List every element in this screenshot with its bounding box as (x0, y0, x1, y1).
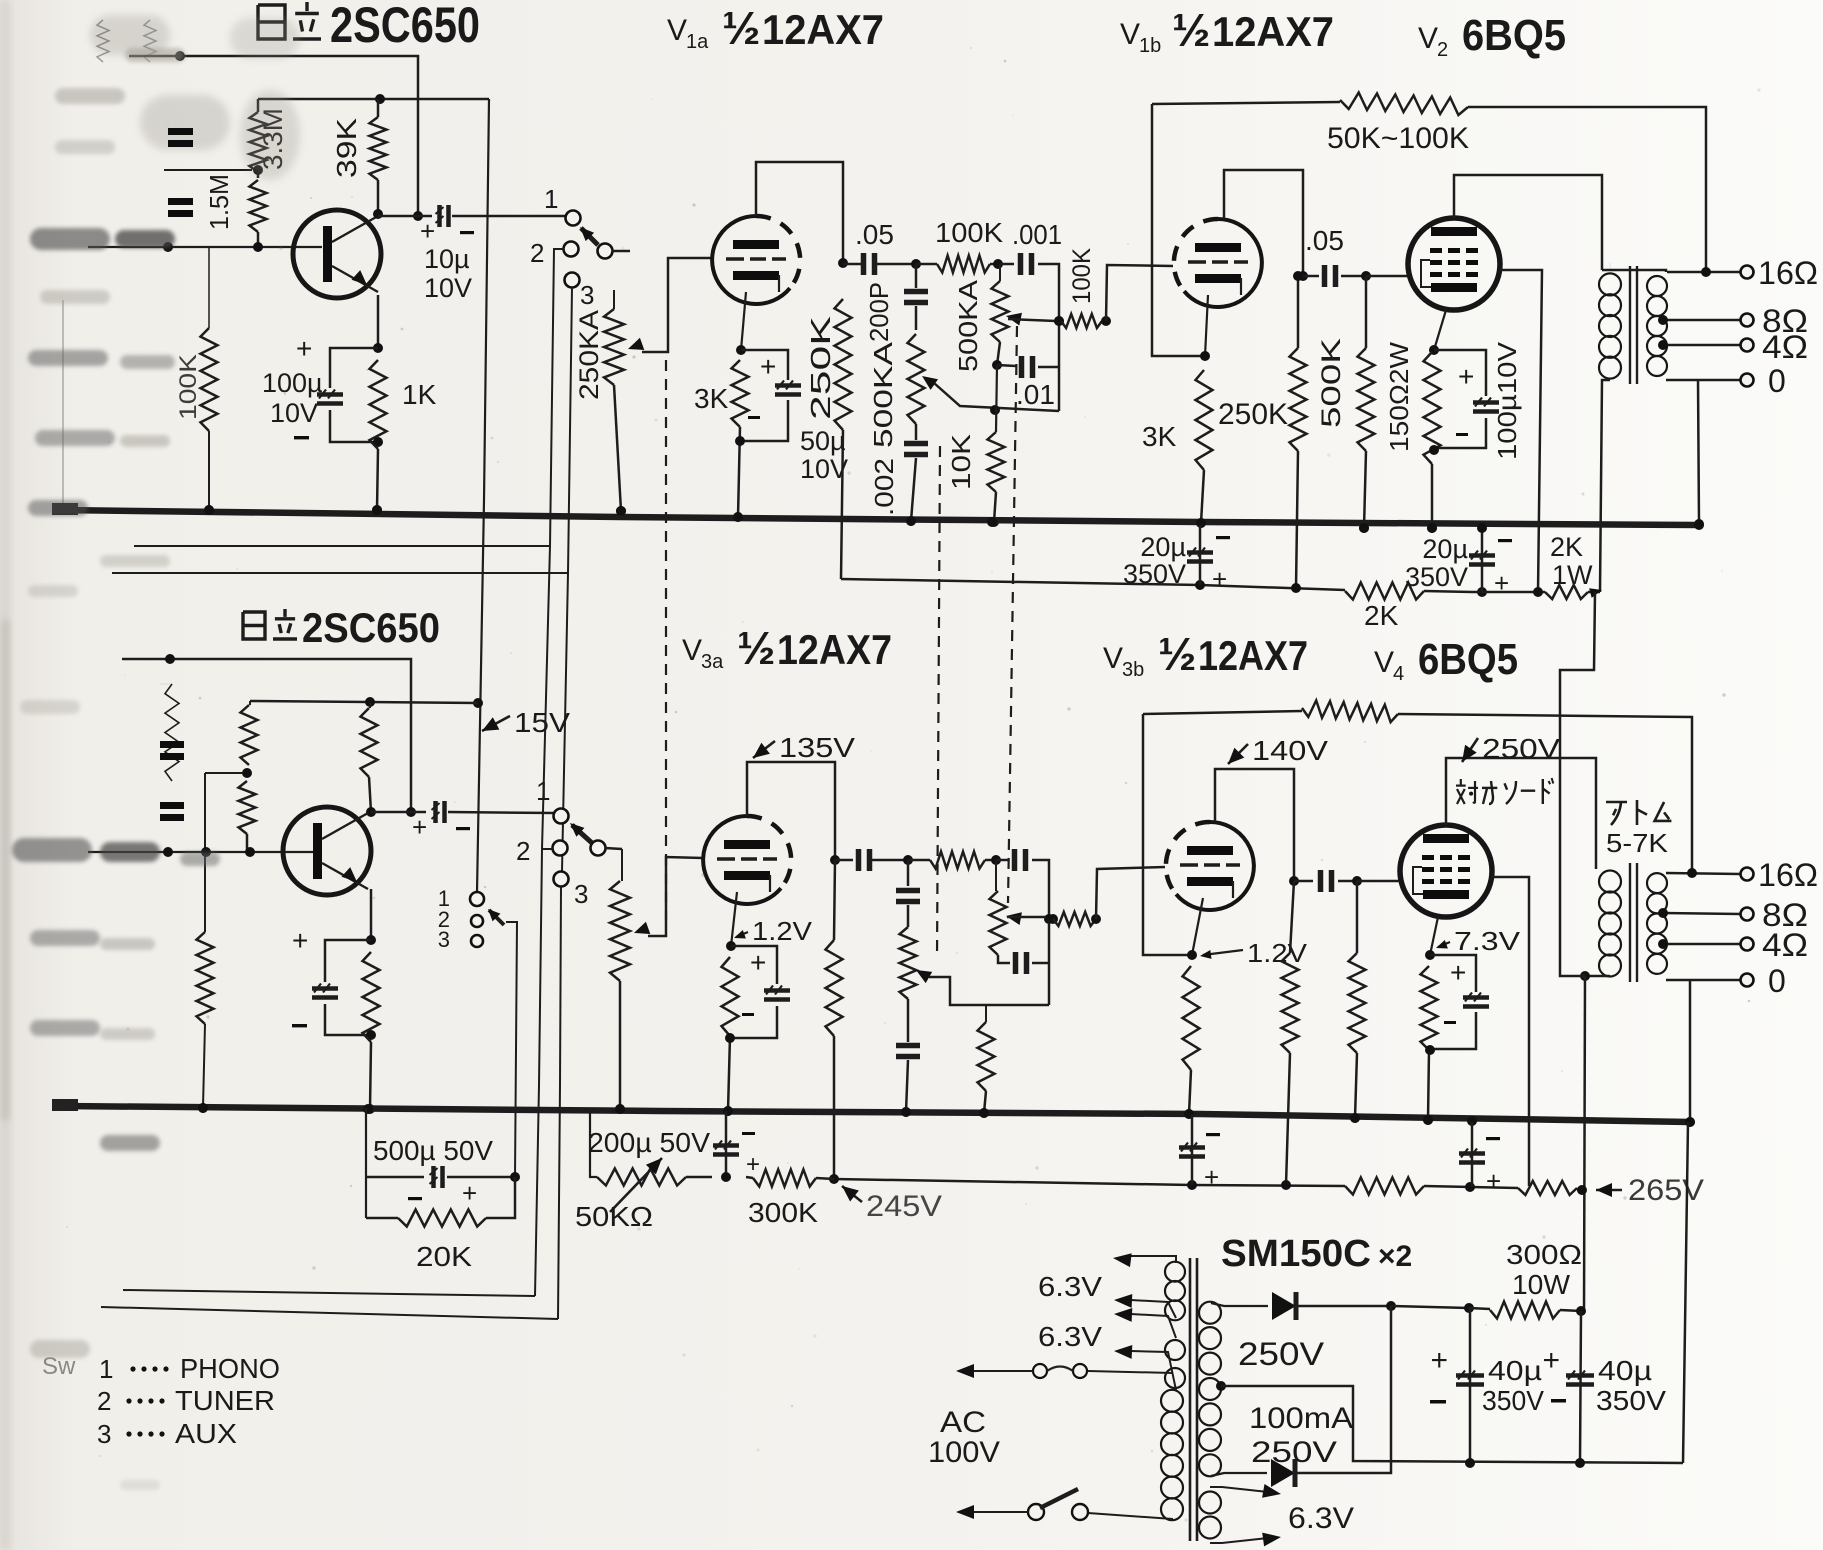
svg-text:10W: 10W (1512, 1269, 1571, 1300)
svg-text:1: 1 (536, 776, 550, 806)
svg-text:4: 4 (1393, 663, 1404, 685)
svg-text:3K: 3K (1142, 421, 1177, 452)
svg-text:12AX7: 12AX7 (1212, 8, 1334, 55)
svg-text:+: + (1212, 564, 1227, 594)
svg-text:20µ: 20µ (1422, 534, 1468, 564)
svg-text:.002: .002 (869, 458, 899, 516)
svg-text:+: + (746, 1151, 760, 1178)
svg-text:3: 3 (574, 879, 588, 909)
svg-text:½: ½ (1172, 4, 1210, 56)
svg-text:10µ: 10µ (424, 244, 470, 274)
svg-text:5-7K: 5-7K (1606, 828, 1669, 858)
svg-text:135V: 135V (779, 732, 855, 763)
svg-text:250K: 250K (1218, 398, 1288, 431)
svg-text:350V: 350V (1405, 562, 1468, 592)
svg-text:×2: ×2 (1378, 1240, 1412, 1273)
svg-text:250K: 250K (805, 316, 836, 420)
svg-text:SM150C: SM150C (1221, 1233, 1371, 1275)
svg-text:250V: 250V (1482, 733, 1560, 764)
svg-text:350V: 350V (1596, 1385, 1666, 1416)
svg-text:12AX7: 12AX7 (1198, 632, 1308, 679)
svg-text:39K: 39K (331, 118, 362, 178)
svg-text:2: 2 (530, 238, 544, 268)
svg-text:50µ: 50µ (800, 426, 846, 456)
svg-text:½: ½ (1158, 628, 1196, 680)
svg-text:V: V (1374, 646, 1394, 679)
svg-text:250KA: 250KA (574, 310, 604, 400)
svg-text:+: + (1430, 1344, 1448, 1377)
svg-text:+: + (296, 333, 312, 364)
svg-text:100µ10V: 100µ10V (1492, 341, 1522, 460)
svg-text:2K: 2K (1364, 600, 1399, 631)
svg-text:16Ω: 16Ω (1758, 255, 1818, 291)
svg-text:100K: 100K (175, 354, 202, 420)
svg-text:10V: 10V (800, 454, 848, 484)
svg-text:1.5M: 1.5M (204, 174, 234, 230)
svg-text:100K: 100K (1068, 248, 1096, 304)
svg-text:V: V (1418, 22, 1438, 55)
svg-text:+: + (760, 351, 776, 382)
svg-text:TUNER: TUNER (175, 1385, 275, 1416)
svg-text:350V: 350V (1123, 559, 1186, 589)
svg-text:6.3V: 6.3V (1038, 1271, 1102, 1302)
svg-text:2K: 2K (1550, 532, 1583, 562)
svg-text:15V: 15V (514, 707, 570, 738)
svg-text:6.3V: 6.3V (1038, 1321, 1102, 1352)
svg-text:3: 3 (438, 927, 450, 952)
svg-text:350V: 350V (1482, 1385, 1544, 1416)
svg-text:1.2V: 1.2V (1247, 938, 1308, 968)
svg-text:2SC650: 2SC650 (330, 0, 480, 53)
svg-text:1a: 1a (686, 31, 709, 53)
svg-text:3K: 3K (694, 383, 729, 414)
svg-text:40µ: 40µ (1488, 1355, 1542, 1386)
svg-text:V: V (1103, 642, 1123, 675)
svg-text:0: 0 (1768, 963, 1786, 999)
svg-text:250V: 250V (1251, 1436, 1337, 1469)
svg-text:.05: .05 (855, 219, 894, 250)
svg-text:+: + (462, 1178, 477, 1208)
svg-text:+: + (750, 947, 766, 978)
svg-text:½: ½ (722, 2, 760, 54)
svg-text:500K: 500K (1316, 338, 1346, 428)
svg-text:6BQ5: 6BQ5 (1418, 635, 1518, 684)
svg-text:7.3V: 7.3V (1454, 926, 1521, 956)
svg-text:20µ: 20µ (1140, 532, 1186, 562)
svg-text:0: 0 (1768, 363, 1786, 399)
svg-text:2: 2 (1437, 39, 1448, 61)
svg-text:+: + (412, 812, 427, 842)
svg-text:1K: 1K (402, 379, 437, 410)
svg-text:300Ω: 300Ω (1506, 1239, 1582, 1270)
svg-text:V: V (682, 634, 702, 667)
svg-text:50K~100K: 50K~100K (1327, 122, 1469, 155)
svg-text:50KΩ: 50KΩ (575, 1201, 653, 1232)
svg-text:½: ½ (737, 622, 775, 674)
svg-text:100mA: 100mA (1249, 1402, 1353, 1435)
svg-text:10V: 10V (270, 398, 318, 428)
svg-text:100V: 100V (928, 1436, 1000, 1469)
svg-text:2SC650: 2SC650 (302, 604, 440, 651)
svg-text:+: + (1204, 1162, 1219, 1192)
svg-text:V: V (1120, 18, 1140, 51)
svg-text:300K: 300K (748, 1197, 818, 1228)
svg-text:12AX7: 12AX7 (762, 6, 884, 53)
svg-text:+: + (1542, 1344, 1560, 1377)
svg-text:4Ω: 4Ω (1762, 329, 1808, 365)
svg-text:100K: 100K (935, 217, 1003, 248)
svg-text:150Ω2W: 150Ω2W (1384, 342, 1414, 452)
svg-text:2: 2 (516, 836, 530, 866)
svg-text:265V: 265V (1628, 1174, 1704, 1207)
svg-text:12AX7: 12AX7 (777, 626, 892, 673)
svg-text:3a: 3a (701, 651, 724, 673)
svg-text:40µ: 40µ (1598, 1355, 1652, 1386)
svg-text:200µ 50V: 200µ 50V (588, 1127, 710, 1158)
svg-text:10K: 10K (946, 433, 976, 490)
svg-text:1W: 1W (1552, 560, 1593, 590)
svg-text:500KA: 500KA (953, 279, 983, 372)
svg-text:.001: .001 (1012, 219, 1062, 250)
svg-text:1.2V: 1.2V (752, 916, 813, 946)
svg-text:6BQ5: 6BQ5 (1462, 11, 1566, 60)
svg-text:V: V (667, 14, 687, 47)
svg-text:+: + (1458, 361, 1474, 392)
svg-text:.05: .05 (1305, 225, 1344, 256)
svg-text:140V: 140V (1252, 735, 1328, 766)
svg-text:AUX: AUX (175, 1418, 237, 1449)
svg-text:1: 1 (99, 1354, 113, 1384)
svg-text:1: 1 (544, 184, 558, 214)
svg-text:3b: 3b (1122, 659, 1144, 681)
svg-text:6.3V: 6.3V (1288, 1502, 1354, 1535)
svg-text:+: + (1450, 957, 1466, 988)
svg-text:200P: 200P (864, 282, 894, 342)
svg-text:100µ: 100µ (262, 368, 323, 398)
svg-text:20K: 20K (416, 1241, 472, 1272)
svg-text:3: 3 (580, 280, 594, 310)
svg-text:2: 2 (97, 1386, 111, 1416)
svg-text:+: + (420, 216, 435, 246)
svg-text:.01: .01 (1016, 379, 1055, 410)
svg-text:AC: AC (940, 1406, 986, 1439)
svg-text:+: + (1486, 1166, 1501, 1196)
svg-text:PHONO: PHONO (180, 1353, 280, 1384)
svg-text:245V: 245V (866, 1190, 942, 1223)
svg-text:3: 3 (97, 1419, 111, 1449)
svg-text:+: + (292, 925, 308, 956)
svg-text:4Ω: 4Ω (1762, 927, 1808, 963)
svg-text:500µ 50V: 500µ 50V (373, 1135, 493, 1166)
svg-text:+: + (1494, 568, 1509, 598)
svg-text:500KA: 500KA (868, 341, 898, 448)
svg-text:1b: 1b (1139, 35, 1161, 57)
svg-text:250V: 250V (1238, 1336, 1325, 1372)
svg-text:10V: 10V (424, 273, 472, 303)
svg-text:16Ω: 16Ω (1758, 857, 1818, 893)
